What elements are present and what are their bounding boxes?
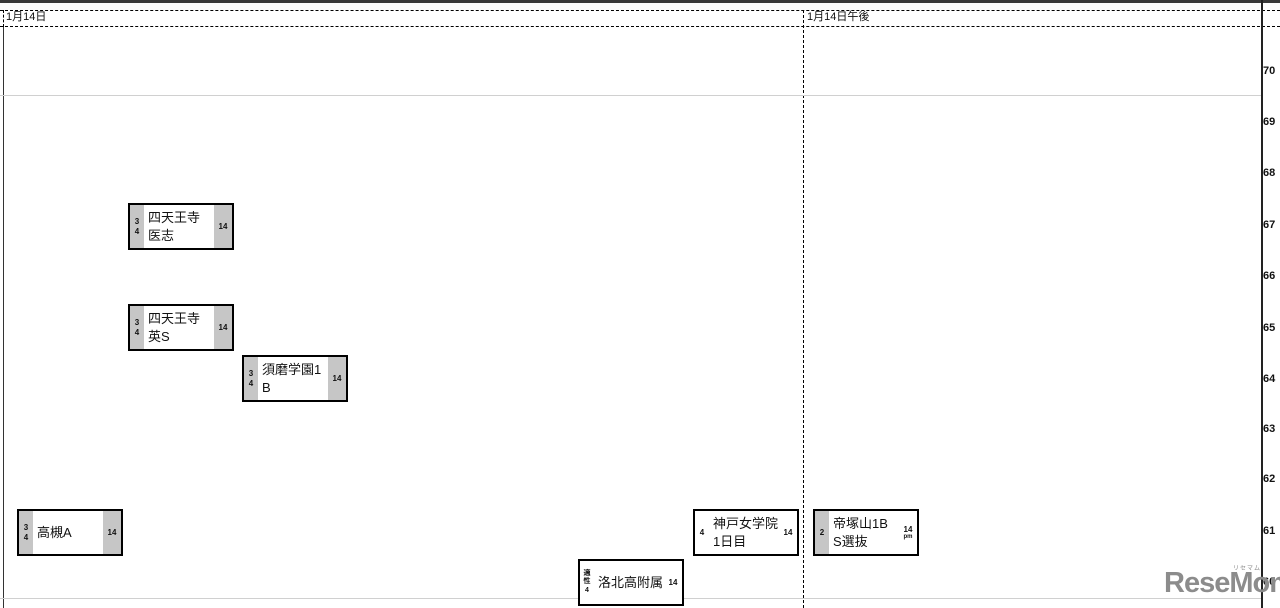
exam-box-school-name: 四天王寺 英S: [144, 306, 214, 349]
exam-box-left-code: 2: [815, 511, 829, 554]
exam-box-right-code: 14: [214, 306, 232, 349]
header-bottom-dashed-line: [0, 26, 1280, 27]
exam-box-school-name: 須磨学園1 B: [258, 357, 328, 400]
exam-box-date: 14: [219, 222, 228, 232]
exam-box-school-name: 高槻A: [33, 511, 103, 554]
exam-box-left-code: 4: [695, 511, 709, 554]
exam-box-kobe-jogakuin-day1[interactable]: 4 神戸女学院 1日目 14: [693, 509, 799, 556]
exam-box-right-code: 14: [214, 205, 232, 248]
y-tick-69: 69: [1263, 116, 1279, 128]
exam-box-left-code: 3 4: [130, 306, 144, 349]
exam-box-right-code: 14: [779, 511, 797, 554]
resemom-watermark: ReseMom.: [1164, 567, 1280, 600]
exam-box-shitennoji-eis[interactable]: 3 4 四天王寺 英S 14: [128, 304, 234, 351]
exam-box-date: 14: [904, 525, 913, 535]
y-tick-66: 66: [1263, 270, 1279, 282]
band-gridline-top: [0, 95, 1261, 96]
exam-schedule-chart: 1月14日 1月14日午後 70 69 68 67 66 65 64 63 62…: [0, 0, 1280, 608]
exam-box-school-name: 洛北高附属: [594, 561, 664, 604]
exam-box-left-code: 3 4: [19, 511, 33, 554]
exam-box-right-code: 14: [328, 357, 346, 400]
y-axis-line: [1261, 0, 1263, 608]
left-chart-border: [3, 27, 4, 608]
exam-box-school-name: 四天王寺 医志: [144, 205, 214, 248]
exam-box-pm-flag: pm: [904, 534, 913, 540]
exam-box-left-code: 適 性 4: [580, 561, 594, 604]
exam-box-school-name: 神戸女学院 1日目: [709, 511, 779, 554]
exam-box-date: 14: [333, 374, 342, 384]
exam-box-date: 14: [669, 578, 678, 588]
y-tick-65: 65: [1263, 322, 1279, 334]
exam-box-right-code: 14: [103, 511, 121, 554]
exam-box-right-code: 14: [664, 561, 682, 604]
left-header-dashed-border: [3, 10, 4, 27]
y-tick-62: 62: [1263, 473, 1279, 485]
top-edge-bar: [0, 0, 1280, 3]
y-tick-61: 61: [1263, 525, 1279, 537]
column-header-jan14-pm: 1月14日午後: [807, 11, 869, 24]
exam-box-date: 14: [784, 528, 793, 538]
exam-box-takatsuki-a[interactable]: 3 4 高槻A 14: [17, 509, 123, 556]
header-top-dashed-line: [0, 10, 1280, 11]
y-tick-63: 63: [1263, 423, 1279, 435]
y-tick-68: 68: [1263, 167, 1279, 179]
exam-box-tezukayama-1b-s[interactable]: 2 帝塚山1B S選抜 14 pm: [813, 509, 919, 556]
exam-box-left-code: 3 4: [130, 205, 144, 248]
y-tick-64: 64: [1263, 373, 1279, 385]
exam-box-rakuhoku-fuzoku[interactable]: 適 性 4 洛北高附属 14: [578, 559, 684, 606]
exam-box-suma-gakuen-1b[interactable]: 3 4 須磨学園1 B 14: [242, 355, 348, 402]
column-header-jan14: 1月14日: [6, 11, 46, 24]
column-separator-dashed-line: [803, 10, 804, 608]
exam-box-shitennoji-ishi[interactable]: 3 4 四天王寺 医志 14: [128, 203, 234, 250]
exam-box-date: 14: [108, 528, 117, 538]
exam-box-left-code: 3 4: [244, 357, 258, 400]
y-tick-67: 67: [1263, 219, 1279, 231]
y-tick-70: 70: [1263, 65, 1279, 77]
exam-box-right-code: 14 pm: [899, 511, 917, 554]
exam-box-school-name: 帝塚山1B S選抜: [829, 511, 899, 554]
exam-box-date: 14: [219, 323, 228, 333]
